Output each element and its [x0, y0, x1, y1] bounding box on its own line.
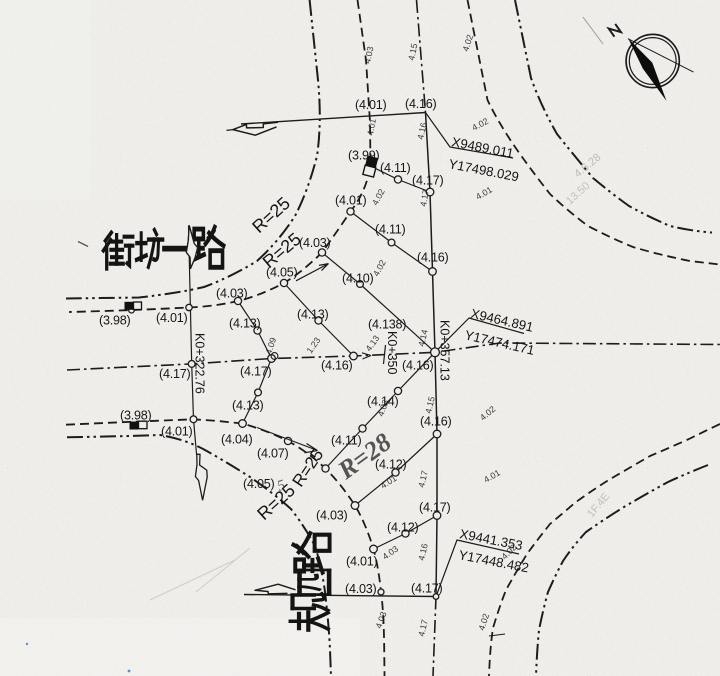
svg-text:(4.05): (4.05): [243, 477, 274, 491]
svg-text:(4.13): (4.13): [297, 308, 328, 322]
svg-text:(4.01): (4.01): [161, 425, 192, 439]
svg-text:(4.16): (4.16): [321, 359, 352, 373]
svg-text:(4.138): (4.138): [368, 318, 406, 332]
svg-text:(4.01): (4.01): [156, 311, 187, 325]
svg-text:(3.99): (3.99): [348, 149, 379, 163]
svg-text:(4.04): (4.04): [221, 433, 252, 447]
svg-text:(4.16): (4.16): [405, 97, 436, 111]
svg-text:(4.11): (4.11): [380, 161, 411, 175]
svg-text:(4.13): (4.13): [232, 399, 263, 413]
svg-text:(4.17): (4.17): [411, 582, 442, 596]
svg-text:(4.03): (4.03): [216, 287, 247, 301]
svg-text:(3.98): (3.98): [120, 409, 151, 423]
svg-text:K0+322.76: K0+322.76: [193, 333, 207, 394]
svg-text:(4.01): (4.01): [346, 555, 377, 569]
svg-text:(4.16): (4.16): [402, 359, 433, 373]
svg-text:(4.17): (4.17): [159, 367, 190, 381]
svg-text:(4.11): (4.11): [375, 223, 406, 237]
svg-text:(4.01): (4.01): [355, 98, 386, 112]
svg-text:(4.12): (4.12): [387, 521, 418, 535]
svg-text:(4.13): (4.13): [229, 317, 260, 331]
svg-text:(4.07): (4.07): [257, 447, 288, 461]
svg-text:(4.03): (4.03): [345, 582, 376, 596]
svg-text:(4.03): (4.03): [316, 509, 347, 523]
svg-text:(4.01): (4.01): [335, 194, 366, 208]
svg-text:(4.10): (4.10): [342, 272, 373, 286]
svg-text:(4.16): (4.16): [420, 415, 451, 429]
svg-text:(4.16): (4.16): [417, 251, 448, 265]
svg-text:K0+357.13: K0+357.13: [438, 320, 452, 381]
svg-text:(4.17): (4.17): [419, 501, 450, 515]
svg-text:(3.98): (3.98): [99, 314, 130, 328]
svg-text:(4.17): (4.17): [412, 174, 443, 188]
svg-text:K0+350: K0+350: [385, 331, 399, 374]
svg-text:(4.17): (4.17): [240, 365, 271, 379]
